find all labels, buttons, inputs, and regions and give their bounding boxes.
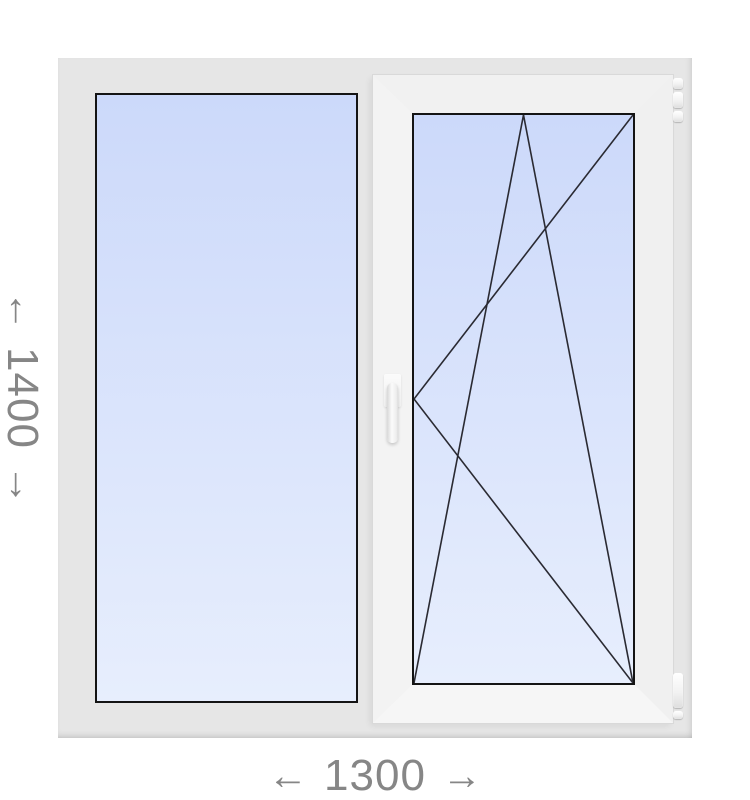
width-dimension-label: ← 1300 → <box>58 752 692 800</box>
bottom-hinge-icon <box>673 673 683 722</box>
fixed-pane-glass[interactable] <box>95 93 358 703</box>
tilt-turn-opening-lines-icon <box>414 115 633 683</box>
sash-glass[interactable] <box>412 113 635 685</box>
tilt-turn-sash[interactable] <box>373 75 673 723</box>
height-value: 1400 <box>0 347 44 449</box>
width-value: 1300 <box>324 754 426 798</box>
height-arrow-up-icon: ← <box>2 291 42 331</box>
window-handle[interactable] <box>387 383 398 443</box>
window-unit <box>58 58 692 738</box>
width-arrow-left-icon: ← <box>268 756 308 796</box>
height-arrow-down-icon: → <box>2 465 42 505</box>
height-dimension-label: ← 1400 → <box>0 288 45 508</box>
hinge-segment <box>673 673 683 708</box>
window-configurator-diagram: ← 1400 → <box>0 0 750 800</box>
top-hinge-icon <box>673 78 683 127</box>
hinge-segment <box>673 78 683 89</box>
width-arrow-right-icon: → <box>442 756 482 796</box>
hinge-segment <box>673 92 683 108</box>
hinge-segment <box>673 711 683 719</box>
hinge-segment <box>673 111 683 122</box>
